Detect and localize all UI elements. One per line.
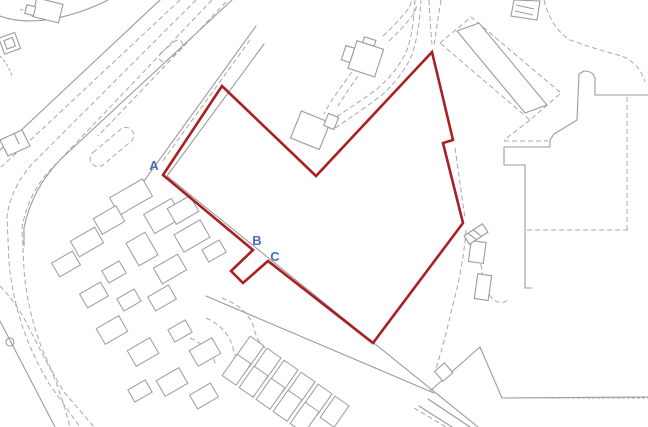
apex-fan-1 bbox=[429, 0, 432, 44]
boundary-chevron bbox=[430, 347, 648, 398]
house-outline bbox=[128, 380, 152, 402]
top-edge-building bbox=[511, 0, 540, 20]
house-outline bbox=[153, 254, 186, 284]
house-outline bbox=[117, 289, 141, 311]
road-lines-layer bbox=[0, 0, 648, 427]
path-edge-nw-2 bbox=[167, 44, 478, 427]
left-edge-dash bbox=[0, 56, 12, 76]
corner-building bbox=[24, 0, 63, 23]
long-barn-building bbox=[457, 23, 547, 113]
t-building-path-2 bbox=[389, 4, 417, 41]
house-outline bbox=[102, 261, 126, 283]
house-outline bbox=[148, 285, 177, 311]
marker-label-B: B bbox=[252, 233, 261, 248]
t-to-valley-path-1 bbox=[324, 72, 352, 114]
apex-fan-2 bbox=[434, 0, 441, 46]
garage-block bbox=[463, 241, 496, 301]
houses-layer bbox=[52, 179, 349, 427]
br-road-dash bbox=[414, 408, 446, 427]
valley-building bbox=[291, 104, 339, 152]
t-shaped-building bbox=[339, 32, 385, 77]
site-plan-map: ABC bbox=[0, 0, 648, 427]
house-outline bbox=[127, 338, 159, 367]
house-outline bbox=[168, 320, 192, 342]
house-outline bbox=[70, 227, 103, 257]
road-edge-br-2 bbox=[419, 406, 452, 427]
path-edge-nw-1 bbox=[126, 26, 256, 206]
road-edge-bl bbox=[0, 321, 55, 427]
traffic-island-large bbox=[87, 124, 137, 170]
house-outline bbox=[96, 316, 128, 345]
site-boundary bbox=[163, 52, 463, 343]
road-edge-upper bbox=[0, 0, 160, 150]
t-to-valley-path-2 bbox=[338, 76, 358, 106]
stepped-building-west bbox=[0, 130, 30, 156]
house-outline bbox=[156, 368, 188, 397]
house-outline bbox=[80, 282, 109, 308]
house-outline bbox=[174, 220, 210, 252]
t-building-path-1 bbox=[383, 0, 412, 36]
site-boundary-polygon bbox=[163, 52, 463, 343]
road-dash-4 bbox=[98, 2, 226, 136]
house-outline bbox=[52, 251, 81, 277]
traffic-island-small bbox=[157, 38, 185, 64]
top-right-curve bbox=[544, 0, 645, 82]
house-outline bbox=[202, 240, 226, 262]
south-east-curve bbox=[436, 230, 466, 368]
site-plan-canvas: ABC bbox=[0, 0, 648, 427]
house-outline bbox=[126, 232, 158, 266]
barn-plot-tail bbox=[504, 120, 530, 140]
marker-label-A: A bbox=[149, 158, 159, 173]
dashed-lines-layer bbox=[0, 0, 648, 427]
buildings-layer bbox=[0, 0, 648, 381]
small-building-west bbox=[0, 32, 21, 54]
house-outline bbox=[189, 338, 221, 367]
house-outline bbox=[190, 383, 219, 409]
marker-label-C: C bbox=[270, 249, 280, 264]
